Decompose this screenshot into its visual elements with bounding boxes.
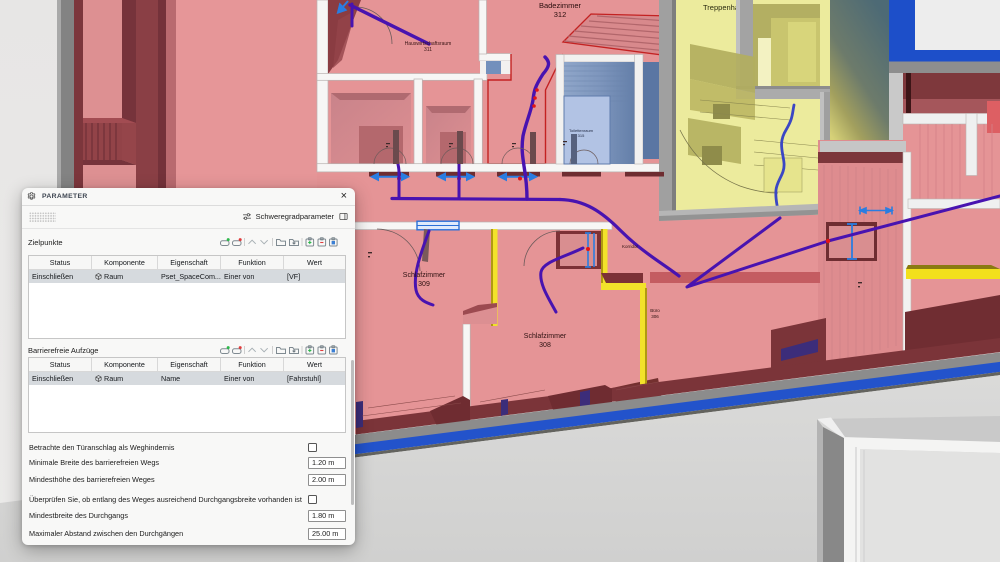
svg-text:Korridor: Korridor	[622, 244, 639, 249]
svg-text:306: 306	[651, 314, 659, 319]
svg-text:315: 315	[578, 133, 585, 138]
svg-text:Schlafzimmer: Schlafzimmer	[524, 333, 567, 340]
svg-text:Büro: Büro	[650, 308, 660, 313]
svg-text:308: 308	[539, 342, 551, 349]
svg-text:Schlafzimmer: Schlafzimmer	[403, 272, 446, 279]
svg-text:Badezimmer: Badezimmer	[539, 1, 582, 10]
svg-text:311: 311	[424, 47, 432, 53]
svg-text:312: 312	[554, 10, 567, 19]
svg-text:309: 309	[418, 281, 430, 288]
